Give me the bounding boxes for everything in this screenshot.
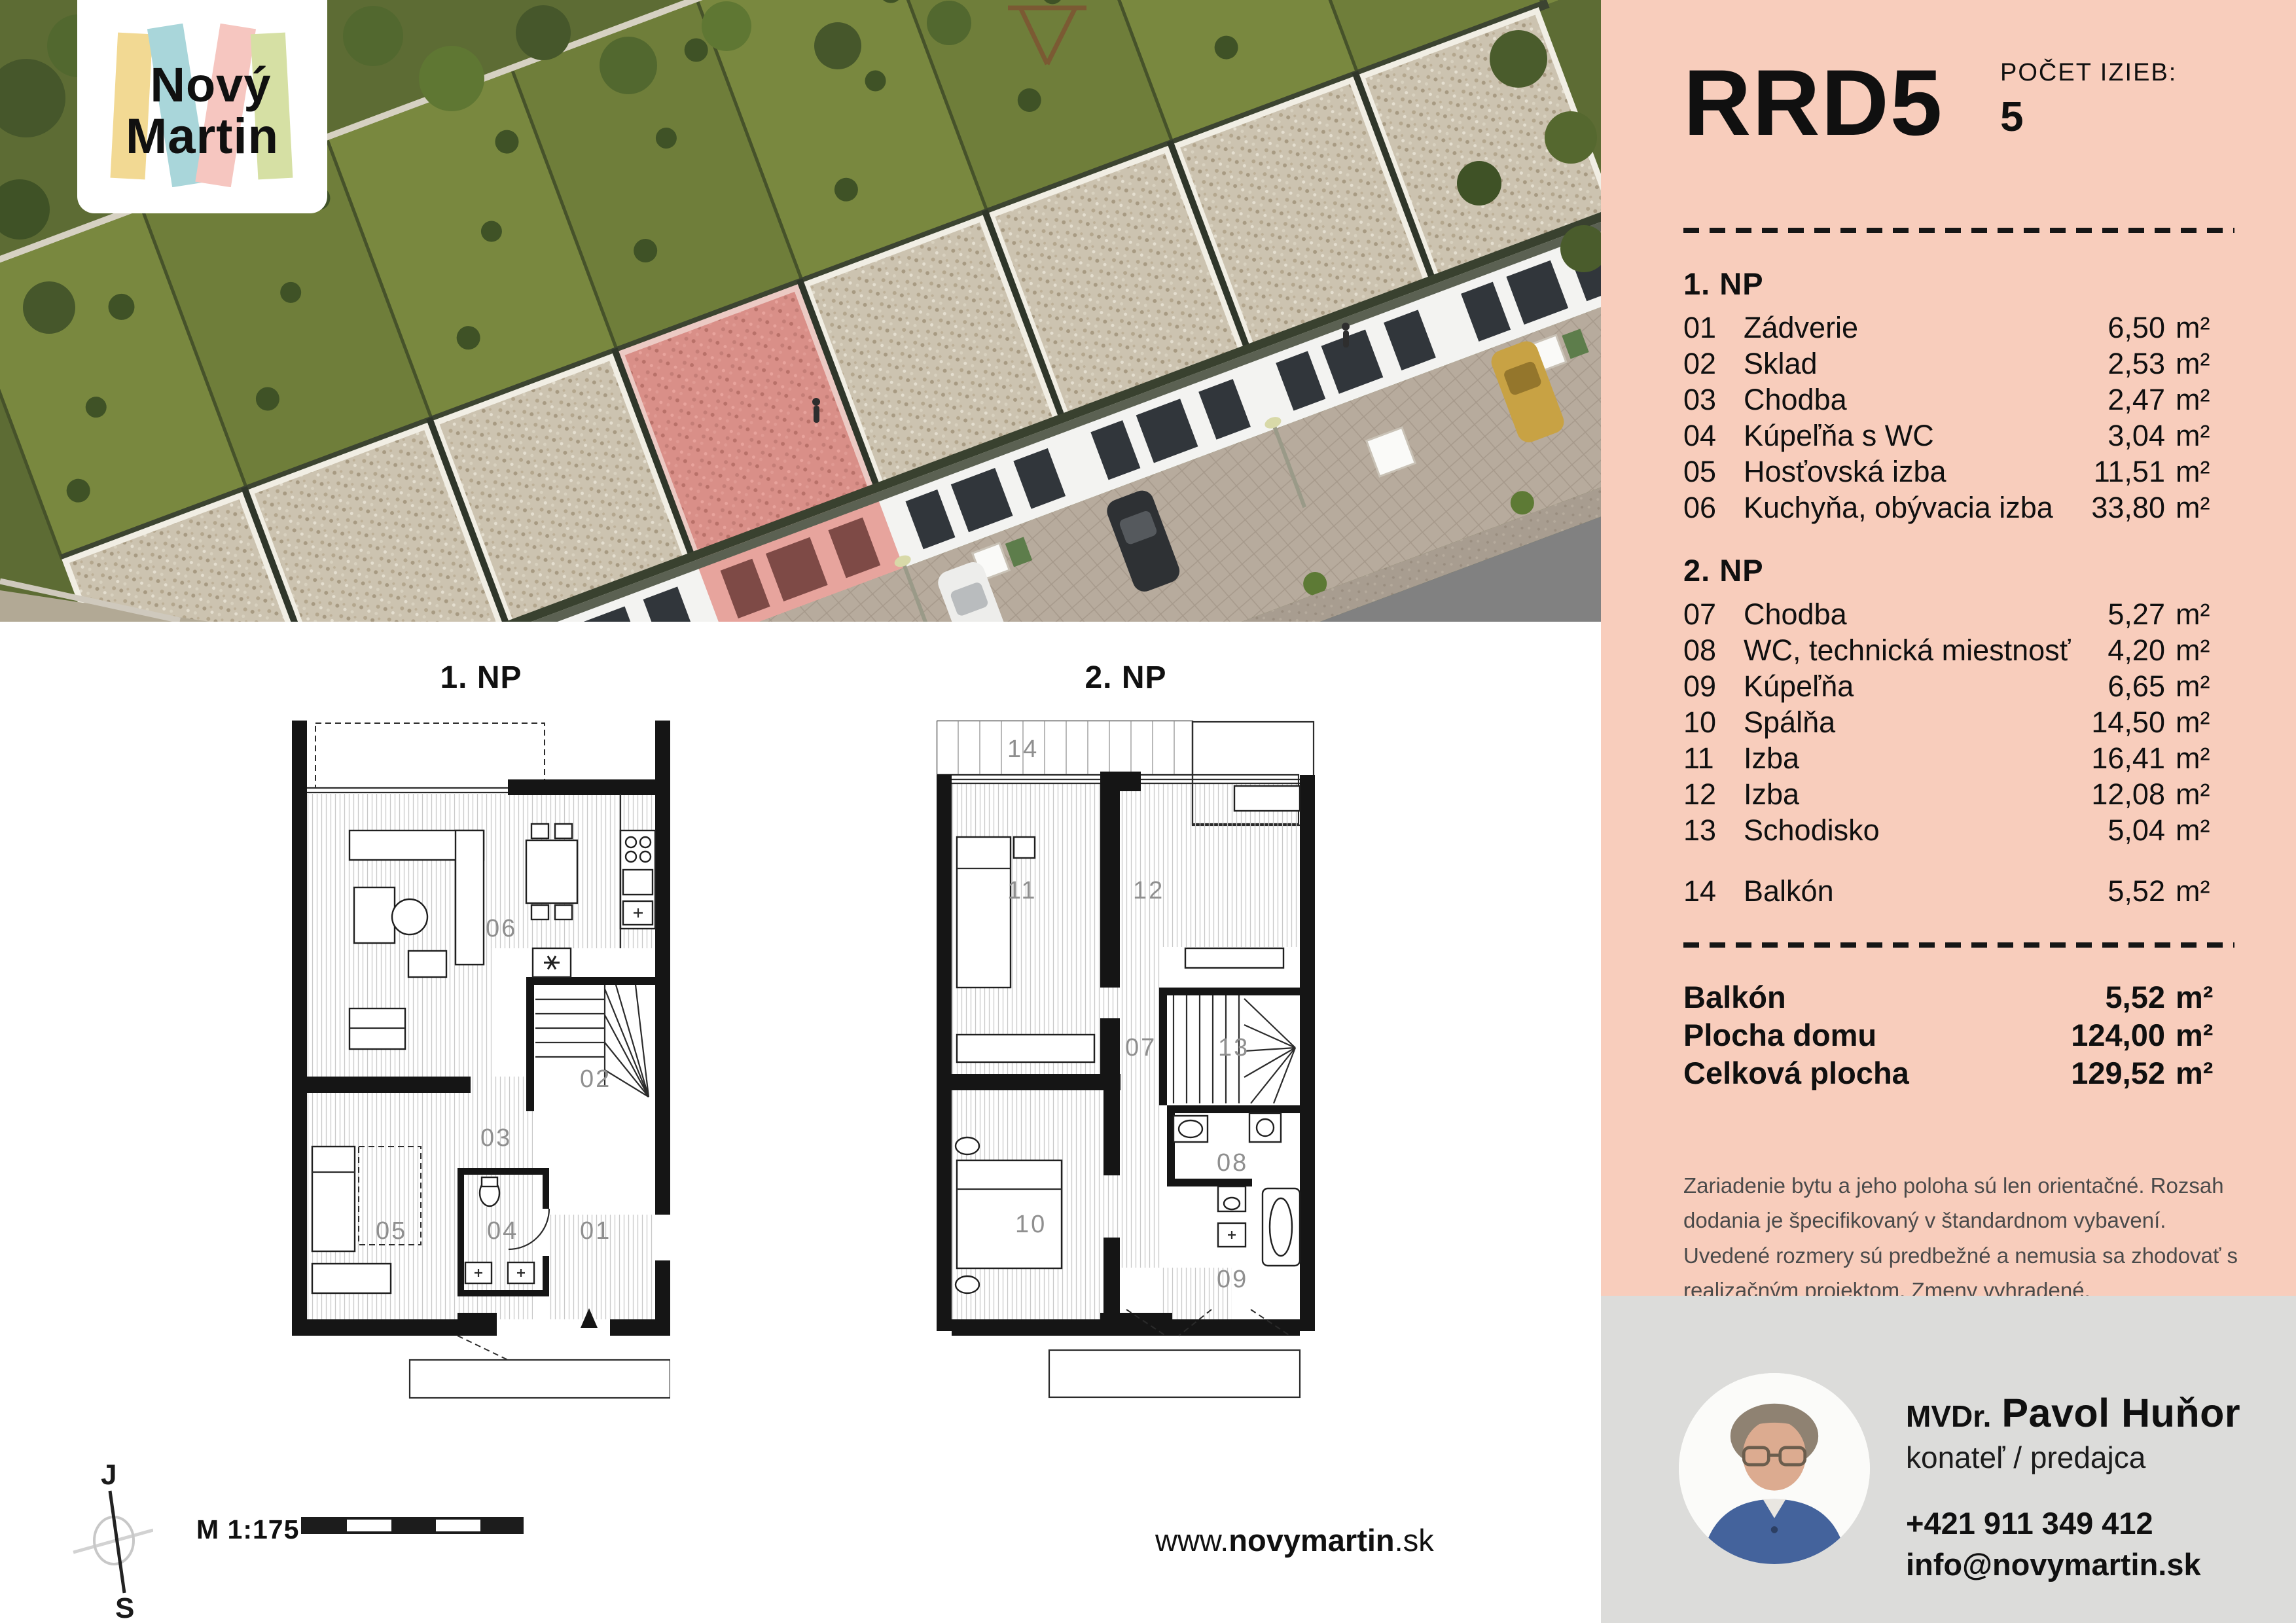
plan1-room-label: 01 [580,1217,611,1245]
room-count-value: 5 [2000,92,2177,141]
plan1-title: 1. NP [292,660,670,696]
plan1-room-label: 04 [487,1217,518,1245]
website-domain: novymartin [1229,1523,1394,1558]
room-count-label: POČET IZIEB: [2000,59,2177,87]
plan2-room-label: 11 [1007,877,1037,904]
agent-avatar [1679,1373,1870,1564]
scale-bar [301,1517,524,1534]
balcony-row: 14 Balkón 5,52 m² [1683,874,2233,910]
room-row: 10Spálňa14,50m² [1683,705,2233,741]
total-row: Balkón5,52m² [1683,979,2233,1017]
agent-name: Pavol Huňor [2001,1390,2240,1436]
floor1-title: 1. NP [1683,266,2233,302]
plan2-room-label: 09 [1217,1266,1248,1293]
brand-line2: Martin [126,111,279,163]
agent-title: MVDr. [1906,1399,1991,1434]
floor2-title: 2. NP [1683,552,2233,588]
scale-label: M 1:175 [196,1514,299,1545]
agent-info: MVDr. Pavol Huňor konateľ / predajca +42… [1906,1390,2240,1582]
room-row: 01Zádverie6,50m² [1683,311,2233,347]
plan1-room-label: 02 [580,1065,611,1093]
dashed-separator [1683,942,2234,948]
room-count-block: POČET IZIEB: 5 [2000,59,2177,141]
plan2-room-label: 12 [1133,877,1164,904]
room-row: 04Kúpeľňa s WC3,04m² [1683,419,2233,455]
floorplan-1np: .w{fill:#151515;} .thin{stroke:#2b2b2b;s… [292,721,670,1401]
agent-footer: MVDr. Pavol Huňor konateľ / predajca +42… [1601,1296,2296,1623]
unit-info-panel: RRD5 POČET IZIEB: 5 1. NP 01Zádverie6,50… [1601,0,2296,1296]
plan2-room-label: 13 [1218,1034,1249,1061]
agent-phone[interactable]: +421 911 349 412 [1906,1505,2240,1541]
total-row: Plocha domu124,00m² [1683,1017,2233,1055]
website-prefix: www. [1155,1523,1229,1558]
compass-south-label: J [101,1462,117,1491]
plan2-room-label: 08 [1217,1149,1248,1177]
plan2-room-label: 10 [1015,1211,1047,1238]
flyer-canvas: Nový Martin RRD5 POČET IZIEB: 5 1. NP 01… [0,0,2296,1623]
agent-role: konateľ / predajca [1906,1440,2240,1475]
room-row: 05Hosťovská izba11,51m² [1683,455,2233,491]
room-row: 11Izba16,41m² [1683,741,2233,777]
agent-email[interactable]: info@novymartin.sk [1906,1546,2240,1582]
floor1-section: 1. NP 01Zádverie6,50m² 02Sklad2,53m² 03C… [1683,266,2233,527]
website-tld: .sk [1395,1523,1434,1558]
compass-icon: J S [68,1462,153,1619]
website-url[interactable]: www.novymartin.sk [1155,1522,1434,1558]
room-row: 12Izba12,08m² [1683,777,2233,813]
plan2-title: 2. NP [937,660,1315,696]
unit-header: RRD5 POČET IZIEB: 5 [1683,56,2233,200]
plan2-room-label: 07 [1125,1034,1157,1061]
brand-logo-card: Nový Martin [77,0,327,213]
room-row: 02Sklad2,53m² [1683,347,2233,383]
plan1-room-label: 05 [376,1217,407,1245]
disclaimer-text: Zariadenie bytu a jeho poloha sú len ori… [1683,1168,2245,1308]
totals-block: Balkón5,52m² Plocha domu124,00m² Celková… [1683,979,2233,1093]
floor2-section: 2. NP 07Chodba5,27m² 08WC, technická mie… [1683,552,2233,849]
total-row: Celková plocha129,52m² [1683,1055,2233,1093]
room-row: 13Schodisko5,04m² [1683,813,2233,849]
room-row: 07Chodba5,27m² [1683,597,2233,633]
room-row: 09Kúpeľňa6,65m² [1683,669,2233,705]
brand-line1: Nový [151,60,272,111]
room-row: 08WC, technická miestnosť4,20m² [1683,633,2233,669]
plan2-room-label: 14 [1007,736,1039,763]
brand-wordmark: Nový Martin [77,0,327,213]
plan1-room-label: 03 [480,1124,512,1152]
dashed-separator [1683,228,2234,233]
compass-north-label: S [115,1592,134,1619]
room-row: 06Kuchyňa, obývacia izba33,80m² [1683,491,2233,527]
plan1-room-label: 06 [486,915,517,942]
floorplan-2np: 14 11 12 07 13 08 09 10 [937,721,1315,1401]
room-row: 03Chodba2,47m² [1683,383,2233,419]
